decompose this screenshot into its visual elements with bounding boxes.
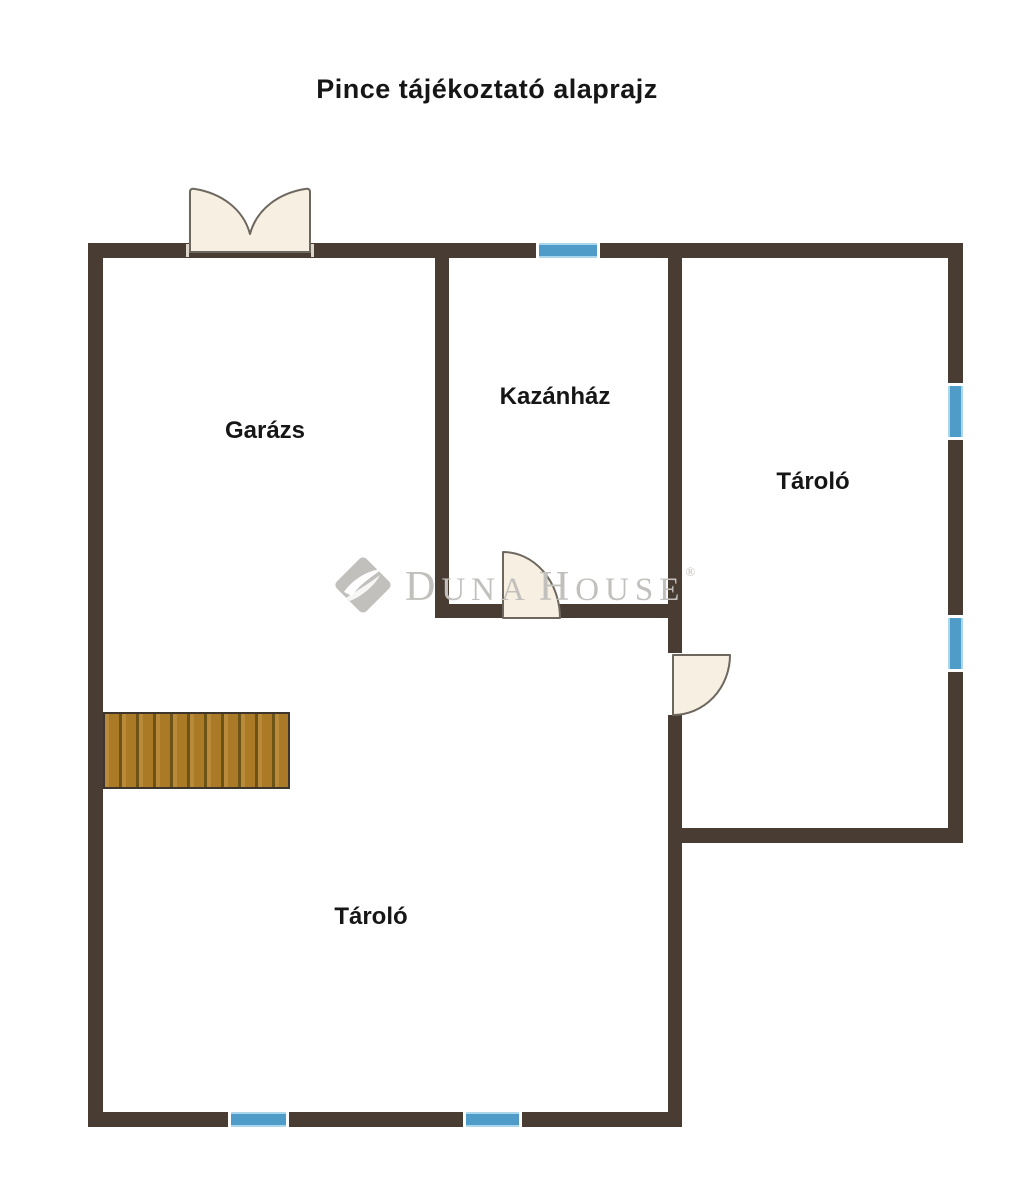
door-tarolo-right — [670, 652, 734, 718]
window-bottom-left — [228, 1112, 289, 1127]
staircase — [103, 712, 290, 789]
window-right-lower — [948, 615, 963, 672]
page-title: Pince tájékoztató alaprajz — [0, 74, 999, 105]
duna-house-diamond-icon — [330, 550, 396, 625]
watermark-letter-h: H — [539, 566, 575, 608]
room-label-tarolo-bottom: Tároló — [334, 903, 407, 931]
room-label-tarolo-right: Tároló — [776, 468, 849, 496]
watermark-letter-d: D — [405, 566, 441, 608]
window-bottom-right — [463, 1112, 522, 1127]
duna-house-watermark: DUNAHOUSE® — [330, 551, 695, 623]
window-right-upper — [948, 383, 963, 440]
wall-right — [948, 243, 963, 843]
floorplan-canvas: Pince tájékoztató alaprajz Garázs Kazánh… — [0, 0, 1024, 1186]
watermark-letters-ouse: OUSE — [575, 574, 685, 607]
wall-bottom — [88, 1112, 682, 1127]
registered-trademark: ® — [685, 565, 695, 578]
wall-center-vertical-lower — [668, 715, 682, 1127]
room-label-kazanhaz: Kazánház — [500, 383, 611, 411]
watermark-letters-una: UNA — [441, 574, 531, 607]
wall-left — [88, 243, 103, 1127]
garage-double-door — [188, 186, 312, 254]
room-label-garazs: Garázs — [225, 417, 305, 445]
watermark-brand-text: DUNAHOUSE® — [405, 566, 695, 608]
window-top — [536, 243, 600, 258]
wall-right-section-bottom — [668, 828, 963, 843]
